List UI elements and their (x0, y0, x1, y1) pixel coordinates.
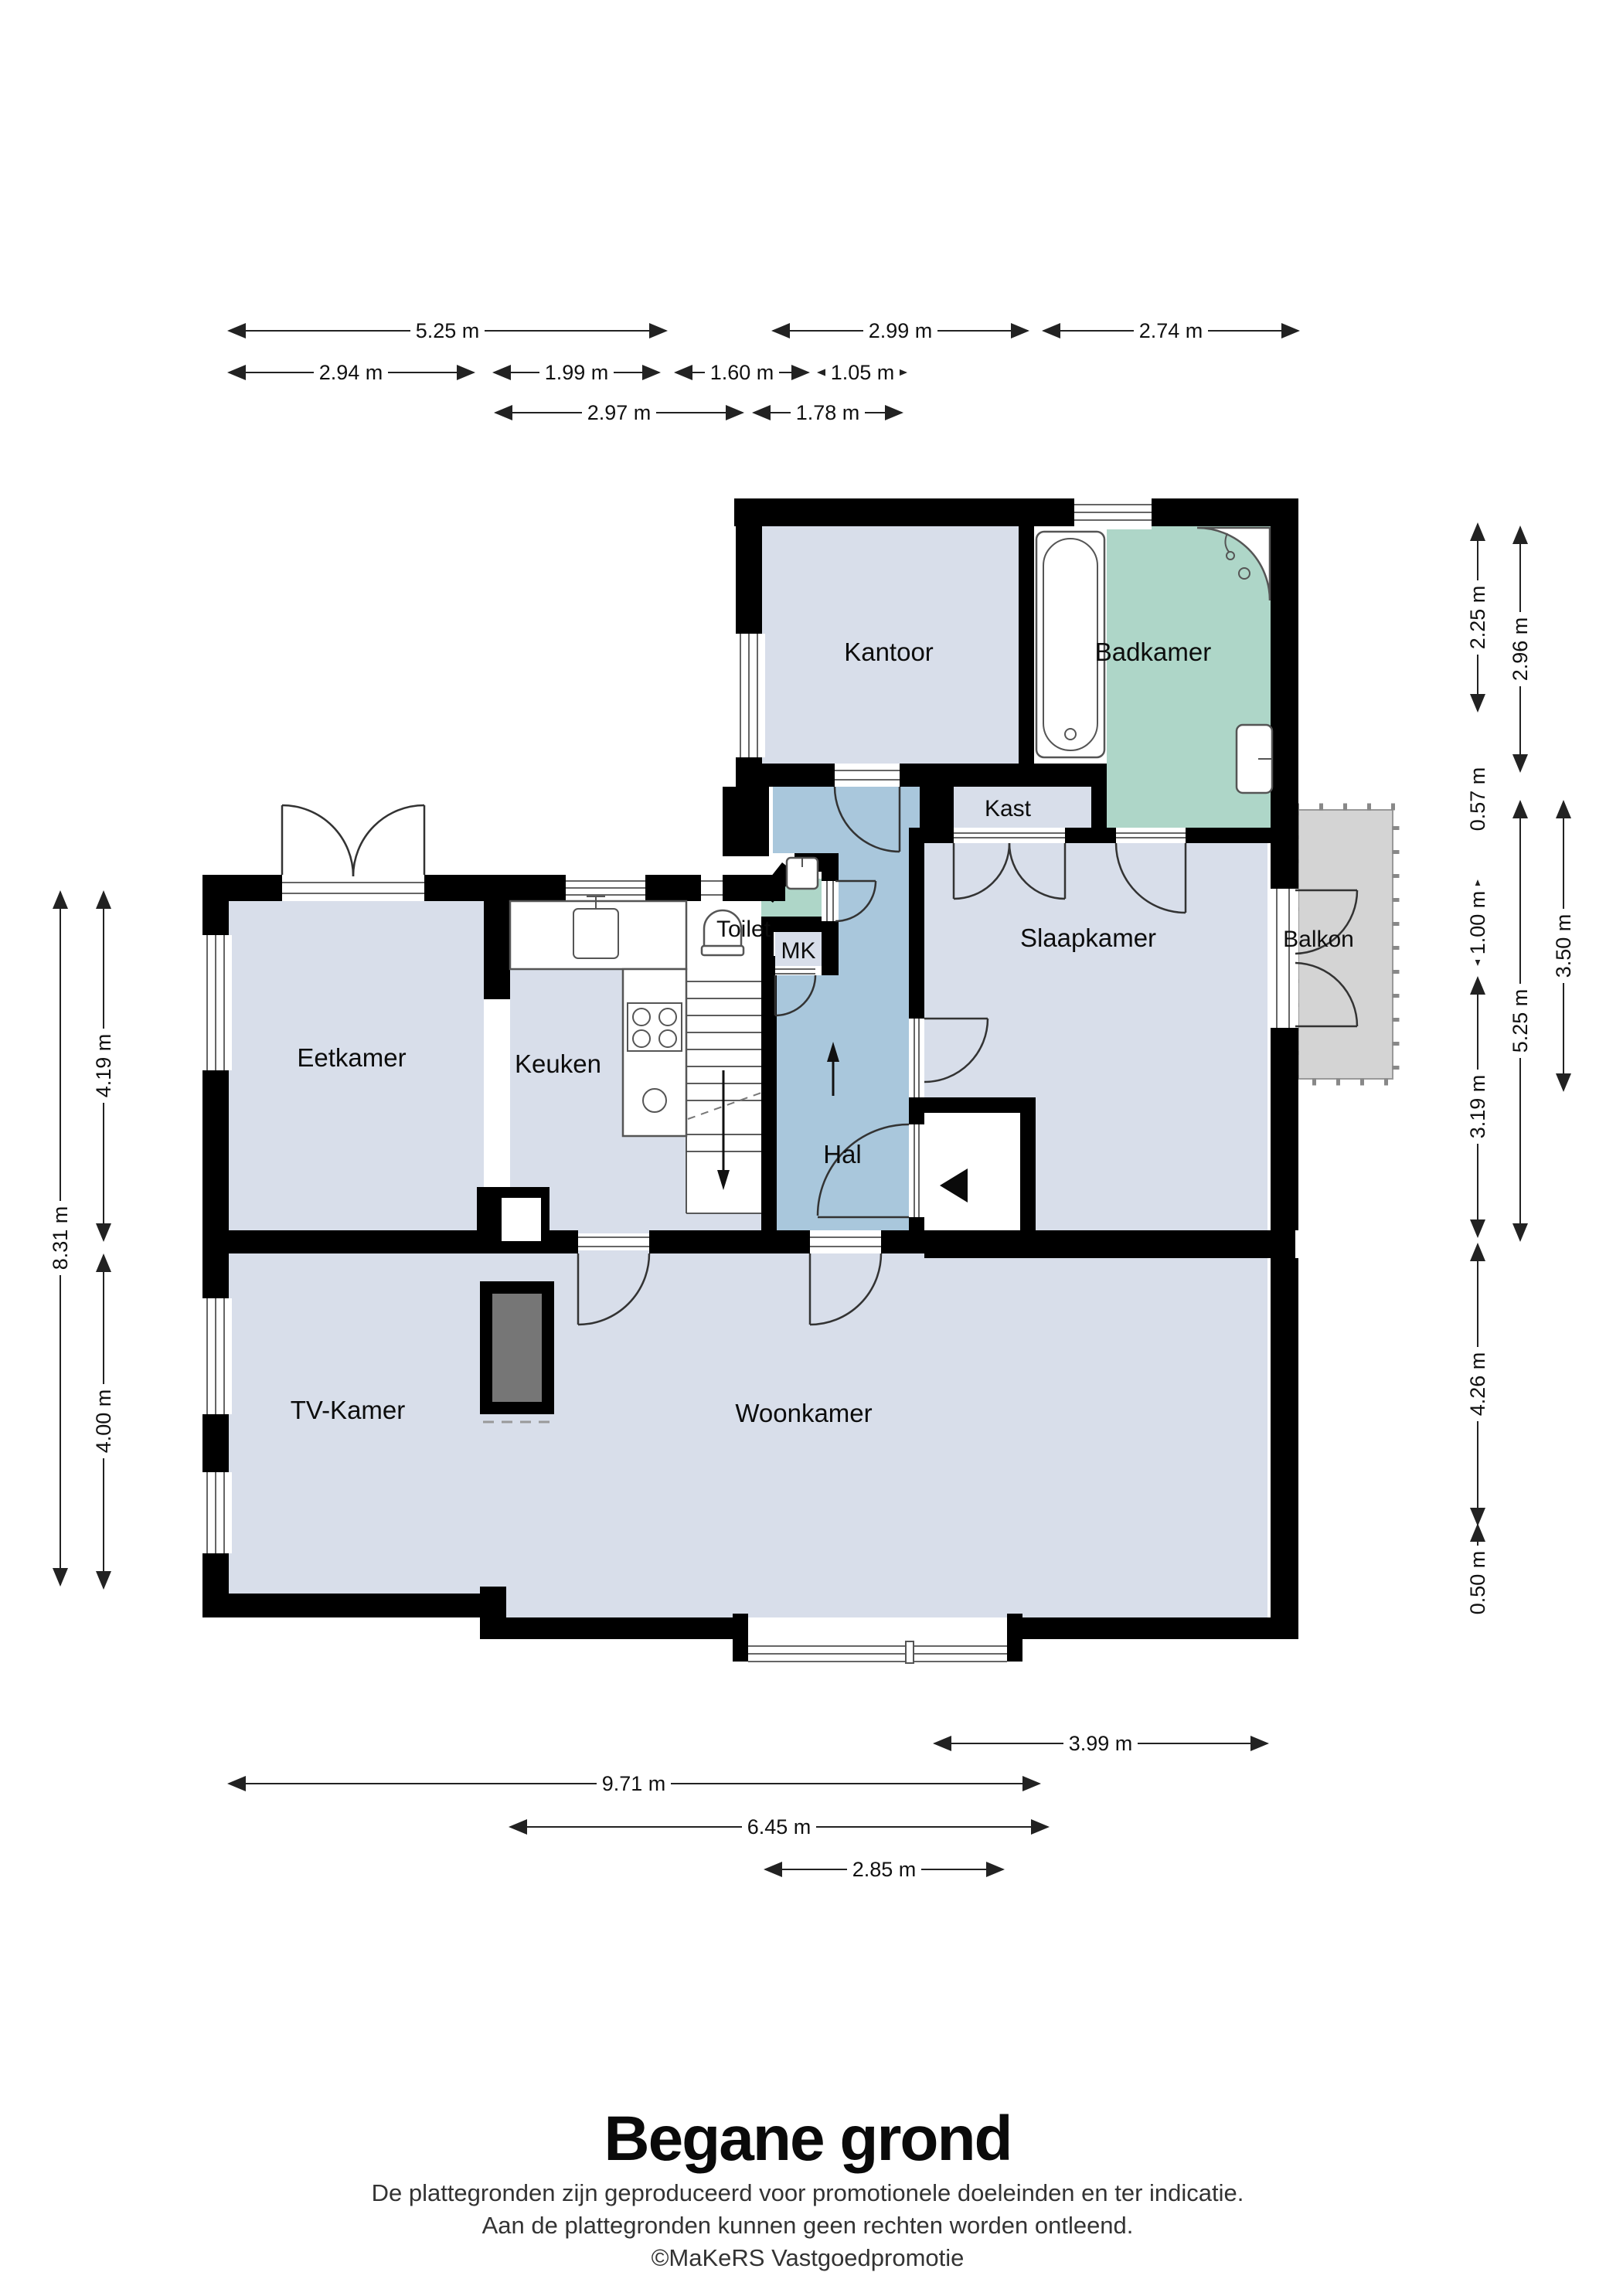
page-title: Begane grond (604, 2104, 1011, 2174)
dim-left-2: 4.00 m (91, 1255, 116, 1588)
bathtub-icon (1036, 532, 1104, 757)
label-tvkamer: TV-Kamer (291, 1396, 406, 1424)
chimney-niche (502, 1198, 541, 1241)
dim-right-7: 4.26 m (1465, 1244, 1490, 1525)
svg-text:5.25 m: 5.25 m (1509, 989, 1532, 1053)
dim-right-4: 3.19 m (1465, 978, 1490, 1236)
disclaimer-line-1: De plattegronden zijn geproduceerd voor … (372, 2179, 1244, 2206)
svg-text:2.74 m: 2.74 m (1139, 319, 1203, 342)
dim-top-0: 5.25 m (229, 318, 666, 343)
toilet-sink-icon (787, 858, 818, 889)
dim-right-0: 2.25 m (1465, 524, 1490, 711)
dim-bottom-2: 6.45 m (510, 1815, 1048, 1839)
dim-right-8: 0.50 m (1465, 1525, 1490, 1620)
fireplace-icon (480, 1281, 554, 1422)
svg-text:1.78 m: 1.78 m (796, 401, 860, 424)
svg-text:4.26 m: 4.26 m (1466, 1352, 1489, 1417)
dim-bottom-0: 3.99 m (934, 1731, 1267, 1756)
dim-top-3: 2.94 m (229, 360, 474, 385)
label-eetkamer: Eetkamer (297, 1043, 406, 1072)
dim-right-2: 0.57 m (1465, 762, 1490, 836)
svg-text:5.25 m: 5.25 m (416, 319, 480, 342)
svg-text:1.99 m: 1.99 m (545, 361, 609, 384)
svg-text:2.25 m: 2.25 m (1466, 586, 1489, 650)
svg-text:9.71 m: 9.71 m (602, 1772, 666, 1795)
svg-text:2.94 m: 2.94 m (319, 361, 383, 384)
dim-bottom-1: 9.71 m (229, 1771, 1039, 1796)
svg-text:2.96 m: 2.96 m (1509, 617, 1532, 682)
room-fills (229, 526, 1396, 1617)
svg-text:2.97 m: 2.97 m (587, 401, 652, 424)
svg-text:1.60 m: 1.60 m (710, 361, 774, 384)
label-mk: MK (781, 938, 816, 964)
room-eetkamer (229, 901, 484, 1253)
label-badkamer: Badkamer (1095, 638, 1211, 666)
label-woonkamer: Woonkamer (735, 1399, 872, 1427)
entrance-arrow-icon (940, 1168, 968, 1202)
svg-text:8.31 m: 8.31 m (49, 1206, 72, 1270)
floor-plan-canvas: Kantoor Badkamer Kast Toilet MK Slaapkam… (0, 0, 1623, 2296)
dim-right-3: 1.00 m (1465, 881, 1490, 964)
svg-text:3.99 m: 3.99 m (1069, 1732, 1133, 1755)
dimensions-right: 2.25 m 2.96 m 0.57 m 1.00 m 3.19 m 5.25 … (1465, 524, 1576, 1620)
label-hal: Hal (823, 1140, 862, 1168)
dim-left-0: 8.31 m (48, 892, 73, 1585)
dim-top-1: 2.99 m (773, 318, 1028, 343)
room-slaapkamer (924, 843, 1267, 1230)
dimensions-bottom: 3.99 m 9.71 m 6.45 m 2.85 m (229, 1731, 1267, 1882)
svg-text:2.85 m: 2.85 m (852, 1858, 917, 1881)
label-keuken: Keuken (515, 1049, 601, 1078)
dimensions-top: 5.25 m 2.99 m 2.74 m 2.94 m 1.99 m 1.60 … (229, 318, 1298, 425)
svg-text:1.00 m: 1.00 m (1466, 891, 1489, 955)
dim-top-6: 1.05 m (818, 360, 906, 385)
svg-text:0.50 m: 0.50 m (1466, 1551, 1489, 1615)
svg-text:1.05 m: 1.05 m (831, 361, 895, 384)
dim-right-5: 5.25 m (1508, 801, 1533, 1240)
svg-text:3.50 m: 3.50 m (1552, 914, 1575, 978)
dim-bottom-3: 2.85 m (765, 1857, 1003, 1882)
dim-top-8: 1.78 m (754, 400, 902, 425)
svg-text:2.99 m: 2.99 m (869, 319, 933, 342)
disclaimer-line-2: Aan de plattegronden kunnen geen rechten… (482, 2212, 1134, 2239)
floor-plan-page: Kantoor Badkamer Kast Toilet MK Slaapkam… (0, 0, 1623, 2296)
svg-text:4.19 m: 4.19 m (92, 1034, 115, 1098)
label-balkon: Balkon (1283, 927, 1354, 952)
svg-text:4.00 m: 4.00 m (92, 1390, 115, 1454)
label-kast: Kast (985, 796, 1032, 821)
bathroom-sink-icon (1237, 725, 1272, 793)
dim-top-2: 2.74 m (1043, 318, 1298, 343)
label-kantoor: Kantoor (844, 638, 934, 666)
label-slaapkamer: Slaapkamer (1020, 924, 1156, 952)
room-tv-woonkamer (229, 1253, 1267, 1617)
dimensions-left: 8.31 m 4.19 m 4.00 m (48, 892, 116, 1588)
svg-text:6.45 m: 6.45 m (747, 1815, 811, 1839)
dim-top-7: 2.97 m (495, 400, 743, 425)
dim-top-5: 1.60 m (675, 360, 808, 385)
dim-left-1: 4.19 m (91, 892, 116, 1240)
svg-text:0.57 m: 0.57 m (1466, 767, 1489, 832)
dim-right-1: 2.96 m (1508, 527, 1533, 771)
disclaimer-line-3: ©MaKeRS Vastgoedpromotie (652, 2244, 965, 2271)
dim-top-4: 1.99 m (494, 360, 659, 385)
svg-text:3.19 m: 3.19 m (1466, 1075, 1489, 1139)
label-toilet: Toilet (716, 917, 771, 942)
dim-right-6: 3.50 m (1551, 801, 1576, 1090)
